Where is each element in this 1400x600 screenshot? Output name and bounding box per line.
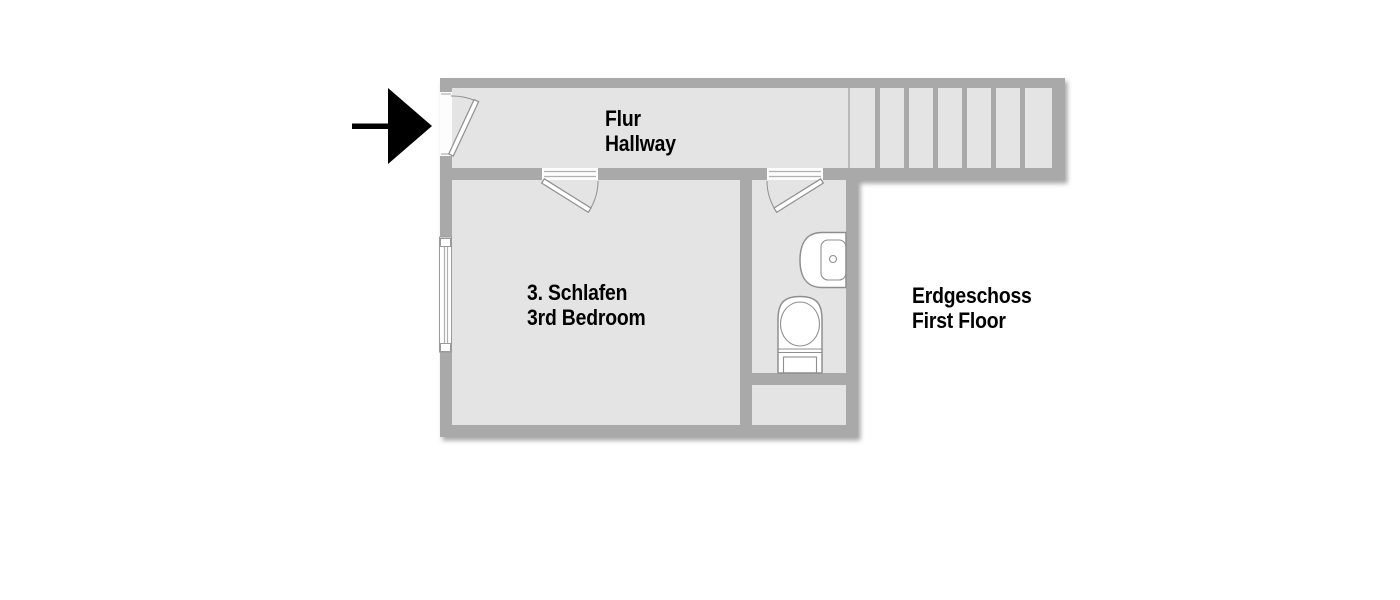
sink-icon xyxy=(800,233,846,288)
hallway-label-en: Hallway xyxy=(605,131,676,156)
hallway-label: Flur Hallway xyxy=(605,106,676,156)
hallway-label-de: Flur xyxy=(605,106,676,131)
floor-label-en: First Floor xyxy=(912,308,1032,333)
entrance-arrow-icon xyxy=(352,88,432,164)
storage-room-floor xyxy=(752,385,846,425)
floorplan-drawing xyxy=(0,0,1400,600)
floorplan-canvas: Flur Hallway 3. Schlafen 3rd Bedroom Erd… xyxy=(0,0,1400,600)
bedroom-label-de: 3. Schlafen xyxy=(527,280,646,305)
floor-label: Erdgeschoss First Floor xyxy=(912,283,1032,333)
bedroom-label-en: 3rd Bedroom xyxy=(527,305,646,330)
floor-label-de: Erdgeschoss xyxy=(912,283,1032,308)
bedroom-label: 3. Schlafen 3rd Bedroom xyxy=(527,280,646,330)
toilet-icon xyxy=(778,297,822,374)
bedroom-window xyxy=(440,237,452,352)
